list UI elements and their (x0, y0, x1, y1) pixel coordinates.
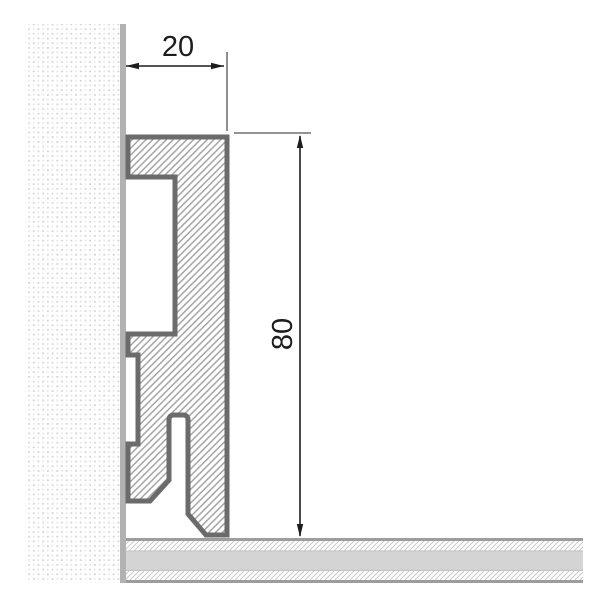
width-arrow-left-icon (126, 63, 139, 69)
width-dimension: 20 (126, 31, 227, 131)
floor-bottom-line (126, 580, 583, 583)
height-arrow-top-icon (297, 135, 303, 148)
wall (25, 24, 126, 583)
width-arrow-right-icon (211, 63, 224, 69)
wall-edge-line (120, 24, 126, 583)
floor-hatch-upper (126, 541, 583, 551)
skirting-cross-section-drawing: 20 80 (0, 0, 604, 604)
skirting-profile-section (128, 137, 227, 535)
height-arrow-bottom-icon (297, 524, 303, 537)
height-dimension-label: 80 (267, 318, 299, 350)
wall-texture (25, 24, 120, 583)
floor-solid-band (126, 552, 583, 570)
floor-inner-line-upper (126, 551, 583, 552)
floor (126, 538, 583, 583)
technical-drawing-canvas: 20 80 (0, 0, 604, 604)
height-dimension: 80 (234, 133, 311, 537)
floor-top-line (126, 538, 583, 541)
width-dimension-label: 20 (162, 31, 194, 63)
floor-hatch-lower (126, 571, 583, 580)
floor-inner-line-lower (126, 570, 583, 571)
